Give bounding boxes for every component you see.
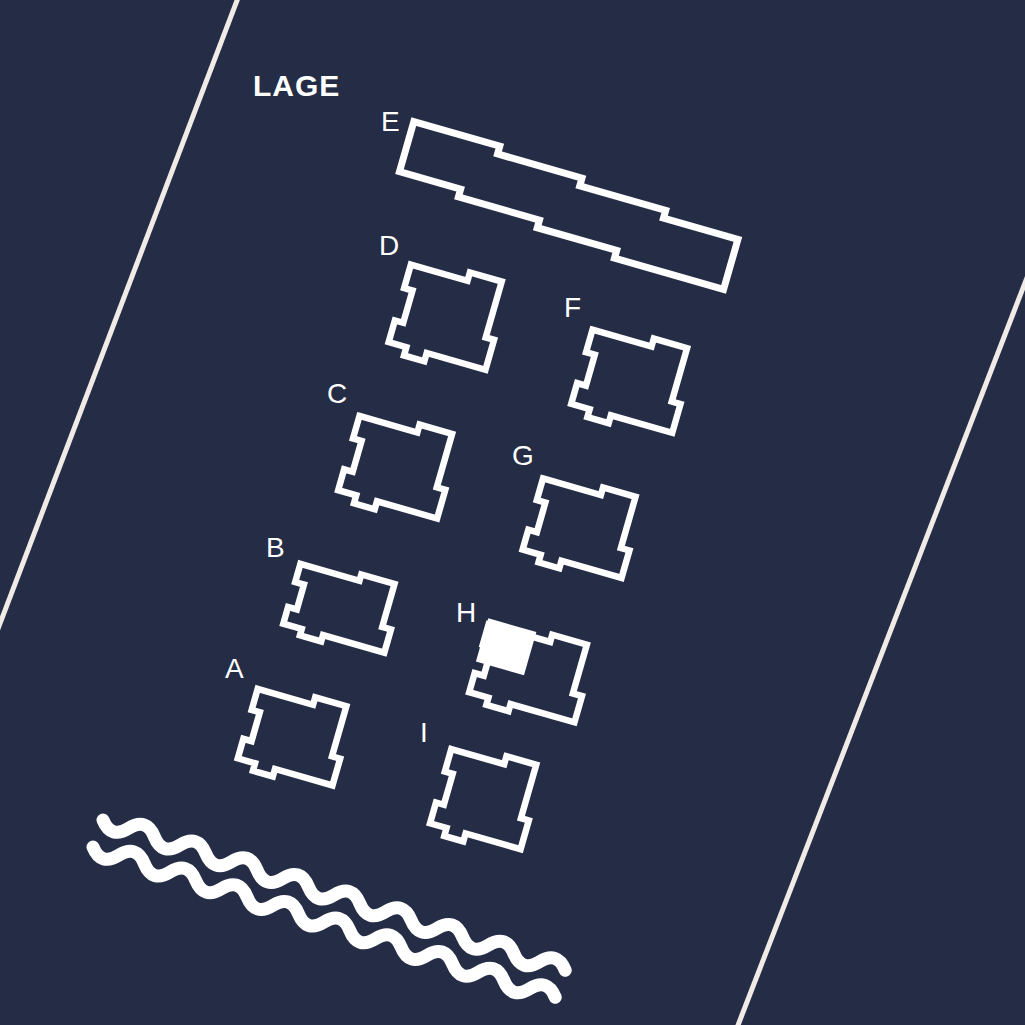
building-C-outline[interactable] <box>336 408 461 527</box>
building-E[interactable] <box>393 122 745 290</box>
building-label-F: F <box>564 294 581 322</box>
building-E-outline[interactable] <box>393 122 745 290</box>
building-label-G: G <box>512 442 534 470</box>
building-label-C: C <box>327 380 347 408</box>
building-D-outline[interactable] <box>386 256 510 378</box>
building-label-A: A <box>225 655 244 683</box>
building-label-I: I <box>420 719 428 747</box>
building-A-outline[interactable] <box>236 681 355 793</box>
wave-line-2 <box>91 839 558 1004</box>
building-G[interactable] <box>520 471 644 586</box>
building-G-outline[interactable] <box>520 471 644 586</box>
wave-line-1 <box>101 812 568 977</box>
road-line-left <box>0 0 241 655</box>
wave-line-1-group <box>101 812 568 977</box>
building-label-E: E <box>381 108 400 136</box>
building-A[interactable] <box>236 681 355 793</box>
building-I-outline[interactable] <box>428 741 544 857</box>
building-label-D: D <box>379 232 399 260</box>
building-H[interactable] <box>465 617 596 730</box>
building-B[interactable] <box>281 558 403 659</box>
site-plan-map <box>0 0 1025 1025</box>
building-F-outline[interactable] <box>569 322 696 441</box>
building-B-outline[interactable] <box>281 558 403 659</box>
building-D[interactable] <box>386 256 510 378</box>
building-label-B: B <box>266 534 285 562</box>
building-F[interactable] <box>569 322 696 441</box>
wave-line-2-group <box>91 839 558 1004</box>
building-C[interactable] <box>336 408 461 527</box>
page-title: LAGE <box>253 71 340 101</box>
building-I[interactable] <box>428 741 544 857</box>
road-line-right <box>735 257 1025 1025</box>
buildings-layer <box>236 122 745 858</box>
site-plan: LAGE ABCDEFGHI <box>0 0 1025 1025</box>
building-label-H: H <box>456 599 476 627</box>
